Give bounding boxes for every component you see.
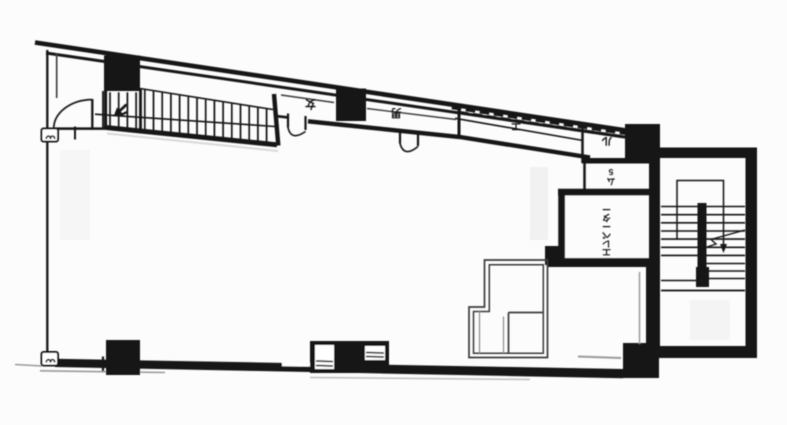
svg-text:ム: ム [606,177,615,187]
svg-text:ル: ル [602,135,613,147]
svg-text:女: 女 [305,98,316,112]
svg-text:エ: エ [511,120,521,131]
svg-text:5: 5 [608,167,613,177]
svg-text:エレベーター: エレベーター [602,204,611,257]
svg-text:男: 男 [391,107,402,120]
